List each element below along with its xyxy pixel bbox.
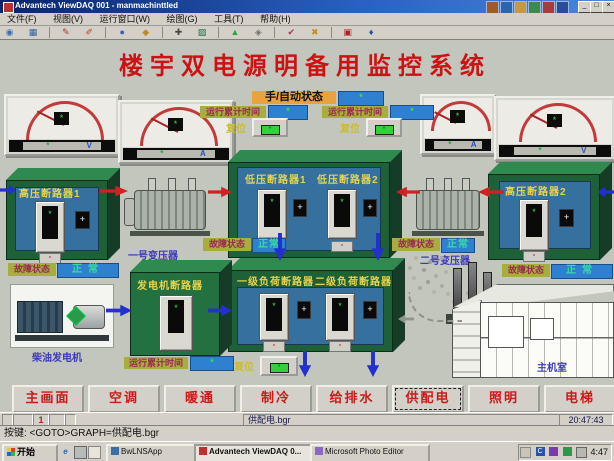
transformer-body <box>416 190 480 230</box>
toolbar-icon-tag[interactable]: ◆ <box>139 27 152 38</box>
system-tray: C 4:47 <box>518 444 612 461</box>
lv1-status-label: 故障状态 <box>203 238 251 251</box>
nav-air-conditioning[interactable]: 空调 <box>88 385 160 413</box>
breaker-on-button[interactable]: + <box>293 199 307 217</box>
toolbar-icon-grid[interactable]: ▨ <box>196 27 209 38</box>
toolbar-icon-draw[interactable]: ✎ <box>59 27 72 38</box>
taskbar-app-viewdaq[interactable]: Advantech ViewDAQ 0... <box>194 444 316 461</box>
hv1-status-label: 故障状态 <box>8 263 56 276</box>
reset-button-3[interactable]: * <box>260 356 298 376</box>
gauge-readout: *A <box>425 139 491 151</box>
mode-status-label: 手/自动状态 <box>252 91 336 104</box>
page-title: 楼宇双电源明备用监控系统 <box>90 46 520 81</box>
hv-breaker-1-label: 高压断路器1 <box>19 185 81 200</box>
gauge-value: * <box>538 147 541 155</box>
tray-status-icon[interactable] <box>563 447 572 456</box>
breaker-display: * <box>332 298 348 331</box>
gauge-face: * <box>424 98 492 138</box>
dashed-flow-curve <box>408 292 462 322</box>
runtime-label-2: 运行累计时间 <box>322 106 388 118</box>
toolbar-icon-block[interactable]: ▣ <box>341 27 354 38</box>
box-front-face: 发电机断路器 * <box>130 272 220 356</box>
toolbar-icon-pen[interactable]: ✐ <box>83 27 96 38</box>
breaker-trip-button[interactable]: - <box>263 341 285 352</box>
breaker-on-button[interactable]: + <box>363 301 377 319</box>
generator-breaker-label: 发电机断路器 <box>137 277 203 292</box>
app-icon <box>3 2 14 13</box>
transformer-1 <box>122 172 218 244</box>
box-front-face: 高压断路器2 * + - <box>488 174 600 260</box>
box-front-face: 高压断路器1 * + - <box>6 180 108 260</box>
generator-engine <box>17 301 63 333</box>
hv-breaker-2-box: 高压断路器2 * + - <box>488 162 612 260</box>
toolbar-icon-node[interactable]: ◈ <box>252 27 265 38</box>
box-front-face: 一级负荷断路器 二级负荷断路器 * + - * + - <box>228 270 393 352</box>
gauge-unit: A <box>471 141 477 149</box>
flow-arrow-down-4 <box>366 351 380 377</box>
show-desktop-icon[interactable] <box>74 446 87 459</box>
menu-run-window[interactable]: 运行窗口(W) <box>93 13 158 25</box>
taskbar-app-label: Microsoft Photo Editor <box>325 447 404 456</box>
lv-breaker-1-label: 低压断路器1 <box>245 171 307 186</box>
breaker-on-button[interactable]: + <box>297 301 311 319</box>
title-bar: Advantech ViewDAQ 001 - manmachinttled _… <box>0 0 614 13</box>
gen-runtime-label: 运行累计时间 <box>124 357 188 369</box>
box-top-face <box>228 150 402 162</box>
breaker-display: * <box>168 300 184 333</box>
command-text: 按键: <GOTO>GRAPH=供配电.bgr <box>0 428 159 439</box>
breaker-on-button[interactable]: + <box>75 211 90 229</box>
box-side-face <box>600 162 612 260</box>
breaker-trip-button[interactable]: - <box>331 241 353 252</box>
diesel-generator-image <box>10 284 114 348</box>
toolbar-icon-screen[interactable]: ▦ <box>26 27 39 38</box>
box-top-face <box>130 260 232 272</box>
voltmeter-gauge-1: * *V <box>4 94 120 156</box>
hv1-status-value: 正常 <box>57 263 119 278</box>
mode-status-value: * <box>338 91 384 106</box>
start-label: 开始 <box>17 447 35 457</box>
gauge-unit: V <box>86 142 91 150</box>
box-top-face <box>6 168 120 180</box>
window-title: Advantech ViewDAQ 001 - manmachinttled <box>15 1 178 10</box>
breaker-display: * <box>526 204 542 237</box>
breaker-trip-button[interactable]: - <box>329 341 351 352</box>
generator-base <box>15 335 109 341</box>
toolbar: ◉ ▦ ✎ ✐ ● ◆ ✚ ▨ ▲ ◈ ✔ ✖ ▣ ♦ <box>0 26 614 40</box>
load-breaker-box: 一级负荷断路器 二级负荷断路器 * + - * + - <box>228 258 405 352</box>
menu-bar: 文件(F) 视图(V) 运行窗口(W) 绘图(G) 工具(T) 帮助(H) <box>0 13 614 26</box>
transformer-2 <box>404 172 492 244</box>
ammeter-gauge-2: * *A <box>420 94 496 155</box>
reset-label-1: 复位 <box>226 120 246 135</box>
taskbar: 开始 e BwLNSApp Advantech ViewDAQ 0... Mic… <box>0 441 614 461</box>
toolbar-icon-point[interactable]: ● <box>116 27 129 38</box>
transformer-tank <box>124 198 135 226</box>
nav-water-supply[interactable]: 给排水 <box>316 385 388 413</box>
breaker-display: * <box>266 298 282 331</box>
tray-clock: 4:47 <box>590 447 608 457</box>
gauge-value: * <box>46 142 49 150</box>
toolbar-icon-up[interactable]: ▲ <box>228 27 241 38</box>
load-breaker-1-label: 一级负荷断路器 <box>237 273 314 288</box>
status-bar: 1 供配电.bgr 20:47:43 <box>0 412 614 426</box>
load-breaker-2-label: 二级负荷断路器 <box>315 273 392 288</box>
box-top-face <box>488 162 612 174</box>
gauge-display: * <box>450 110 465 123</box>
gauge-value: * <box>448 141 451 149</box>
breaker-display: * <box>334 194 350 227</box>
reset-label-2: 复位 <box>340 120 360 135</box>
breaker-switch-load1[interactable]: * <box>259 293 289 341</box>
toolbar-icon-zoom[interactable]: ◉ <box>3 27 16 38</box>
tray-app-icon[interactable] <box>549 447 558 456</box>
transformer-2-caption: 二号变压器 <box>420 252 470 267</box>
gauge-readout: *A <box>123 148 229 160</box>
app-icon <box>199 447 207 455</box>
ie-icon[interactable]: e <box>60 446 71 457</box>
toolbar-icon-diamond[interactable]: ♦ <box>365 27 378 38</box>
breaker-switch[interactable]: * <box>519 199 549 251</box>
nav-hvac[interactable]: 暖通 <box>164 385 236 413</box>
display-icon[interactable] <box>576 447 587 458</box>
ime-indicator-icon[interactable]: C <box>536 447 545 456</box>
hv2-status-label: 故障状态 <box>502 264 550 277</box>
gauge-value: * <box>160 150 163 158</box>
reset-lamp: * <box>261 125 280 135</box>
building-caption: 主机室 <box>537 359 567 374</box>
windows-logo-icon <box>7 448 15 456</box>
screen: Advantech ViewDAQ 001 - manmachinttled _… <box>0 0 614 461</box>
building-window-small <box>530 318 554 340</box>
taskbar-app-photo-editor[interactable]: Microsoft Photo Editor <box>310 444 430 461</box>
toolbar-icon-cancel[interactable]: ✖ <box>308 27 321 38</box>
menu-file[interactable]: 文件(F) <box>0 13 44 25</box>
breaker-switch-gen[interactable]: * <box>159 295 193 351</box>
voltmeter-gauge-2: * *V <box>494 96 614 161</box>
menu-graph[interactable]: 绘图(G) <box>160 13 205 25</box>
gauge-face: * <box>8 98 116 139</box>
gauge-face: * <box>498 100 612 144</box>
breaker-trip-button[interactable]: - <box>523 251 545 262</box>
transformer-base <box>412 231 484 236</box>
gauge-unit: V <box>581 147 586 155</box>
command-line[interactable]: 按键: <GOTO>GRAPH=供配电.bgr <box>0 425 614 441</box>
gauge-display: * <box>168 118 183 131</box>
nav-refrigeration[interactable]: 制冷 <box>240 385 312 413</box>
close-button[interactable]: × <box>602 1 614 13</box>
reset-lamp: * <box>270 363 289 373</box>
menu-view[interactable]: 视图(V) <box>46 13 90 25</box>
breaker-on-button[interactable]: + <box>363 199 377 217</box>
breaker-switch-lv2[interactable]: * <box>327 189 357 239</box>
reset-label-3: 复位 <box>234 358 254 373</box>
generator-breaker-box: 发电机断路器 * <box>130 260 232 356</box>
generator-caption: 柴油发电机 <box>32 349 82 364</box>
volume-icon[interactable] <box>520 447 531 458</box>
toolbar-icon-add[interactable]: ✚ <box>172 27 185 38</box>
breaker-switch[interactable]: * <box>35 201 65 253</box>
nav-lighting[interactable]: 照明 <box>468 385 540 413</box>
channels-icon[interactable] <box>88 446 101 459</box>
breaker-switch-lv1[interactable]: * <box>257 189 287 239</box>
nav-elevator[interactable]: 电梯 <box>544 385 614 413</box>
taskbar-app-bwlnsapp[interactable]: BwLNSApp <box>106 444 200 461</box>
toolbar-icon-ok[interactable]: ✔ <box>285 27 298 38</box>
menu-tools[interactable]: 工具(T) <box>207 13 251 25</box>
app-icon <box>315 447 323 455</box>
reset-button-1[interactable]: * <box>252 118 288 137</box>
breaker-display: * <box>264 194 280 227</box>
reset-button-2[interactable]: * <box>366 118 402 137</box>
app-icon <box>111 447 119 455</box>
nav-power-distribution[interactable]: 供配电 <box>392 385 464 413</box>
box-side-face <box>108 168 120 260</box>
breaker-on-button[interactable]: + <box>559 209 574 227</box>
breaker-display: * <box>42 206 58 239</box>
taskbar-app-label: BwLNSApp <box>121 447 162 456</box>
runtime-label-1: 运行累计时间 <box>200 106 266 118</box>
gauge-readout: *V <box>9 140 115 152</box>
gauge-display: * <box>547 114 562 127</box>
hv2-status-value: 正常 <box>551 264 613 279</box>
flow-arrow-down-3 <box>298 351 312 377</box>
box-side-face <box>393 258 405 352</box>
start-button[interactable]: 开始 <box>2 444 58 461</box>
gauge-readout: *V <box>499 145 611 157</box>
hv-breaker-2-label: 高压断路器2 <box>505 183 567 198</box>
lv-breaker-2-label: 低压断路器2 <box>317 171 379 186</box>
gauge-unit: A <box>200 150 206 158</box>
taskbar-app-label: Advantech ViewDAQ 0... <box>209 447 301 456</box>
building-window-large <box>488 316 524 348</box>
gauge-display: * <box>54 112 69 125</box>
transformer-base <box>130 231 210 236</box>
breaker-switch-load2[interactable]: * <box>325 293 355 341</box>
menu-help[interactable]: 帮助(H) <box>253 13 298 25</box>
nav-main-screen[interactable]: 主画面 <box>12 385 84 413</box>
transformer-body <box>134 190 206 230</box>
reset-lamp: * <box>375 125 394 135</box>
gen-runtime-value: * <box>190 356 234 371</box>
hv-breaker-1-box: 高压断路器1 * + - <box>6 168 120 260</box>
